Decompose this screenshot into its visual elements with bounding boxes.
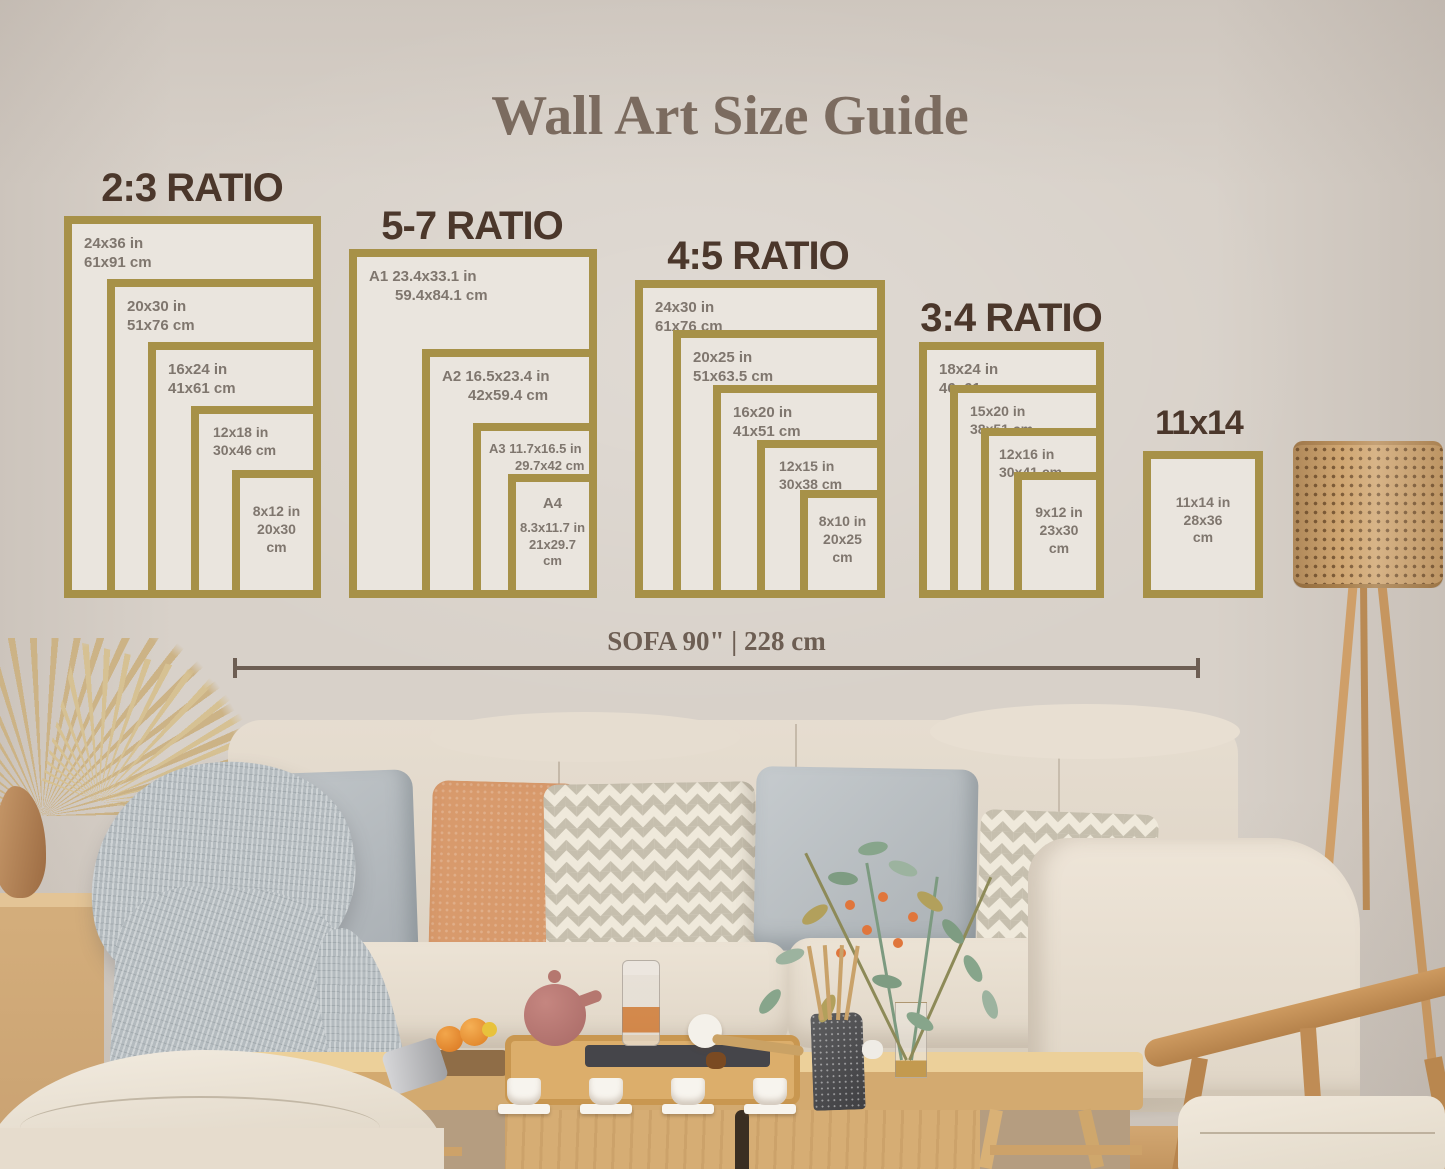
eucalyptus-leaf [887,857,920,879]
orange-berry [878,892,888,902]
eucalyptus-leaf [938,916,967,947]
bamboo-stick [844,946,860,1021]
eucalyptus-arrangement [0,0,1445,1169]
orange-berry [893,938,903,948]
bamboo-stick [807,946,824,1021]
teacup [589,1078,623,1105]
eucalyptus-leaf [774,945,807,967]
eucalyptus-leaf [857,839,889,857]
orange-berry [845,900,855,910]
teacup [507,1078,541,1105]
teacup-saucer [498,1104,550,1114]
teacup-saucer [580,1104,632,1114]
wall-art-size-guide-poster: Wall Art Size Guide 2:3 RATIO24x36 in61x… [0,0,1445,1169]
eucalyptus-leaf [871,972,903,990]
eucalyptus-leaf [799,901,831,929]
armchair-cushion-seam [1200,1132,1435,1134]
teacup [753,1078,787,1105]
eucalyptus-leaf [827,871,858,887]
teacup-saucer [662,1104,714,1114]
pouf-base [0,1128,444,1169]
teacup-saucer [744,1104,796,1114]
eucalyptus-leaf [960,952,986,984]
orange-berry [908,912,918,922]
eucalyptus-leaf [979,988,1001,1021]
orange-berry [862,925,872,935]
teacup [671,1078,705,1105]
eucalyptus-leaf [755,986,784,1017]
